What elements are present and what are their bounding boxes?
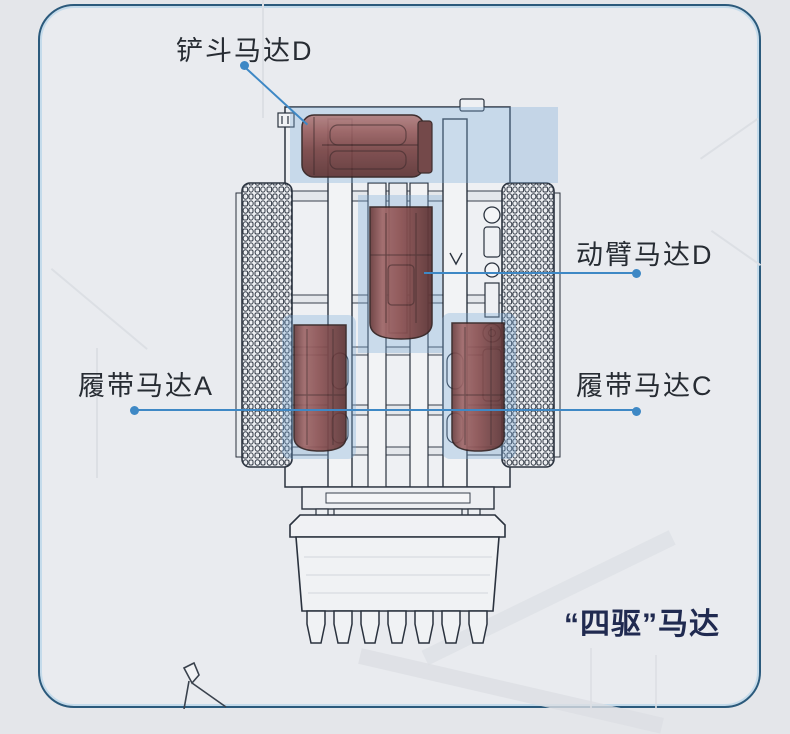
leader-line-track-motors bbox=[134, 409, 636, 411]
callout-bucket-motor: 铲斗马达D bbox=[176, 29, 314, 68]
deco-vertical-line bbox=[590, 648, 592, 709]
deco-vertical-line bbox=[655, 655, 657, 709]
leader-dot-track-motor-a bbox=[130, 406, 139, 415]
callout-boom-motor: 动臂马达D bbox=[576, 233, 714, 272]
callout-track-motor-a: 履带马达A bbox=[78, 364, 214, 403]
leader-dot-track-motor-c bbox=[632, 407, 641, 416]
excavator-diagram bbox=[230, 95, 565, 655]
four-wheel-drive-caption: “四驱”马达 bbox=[564, 599, 720, 643]
fragment-sketch bbox=[168, 660, 230, 709]
partial-drawing-fragment bbox=[168, 660, 230, 714]
callout-track-motor-c: 履带马达C bbox=[576, 364, 714, 403]
leader-line-boom-motor bbox=[424, 272, 636, 274]
page: { "figure": { "diagram": "excavator-top-… bbox=[0, 0, 790, 709]
excavator-top-view bbox=[230, 95, 565, 655]
